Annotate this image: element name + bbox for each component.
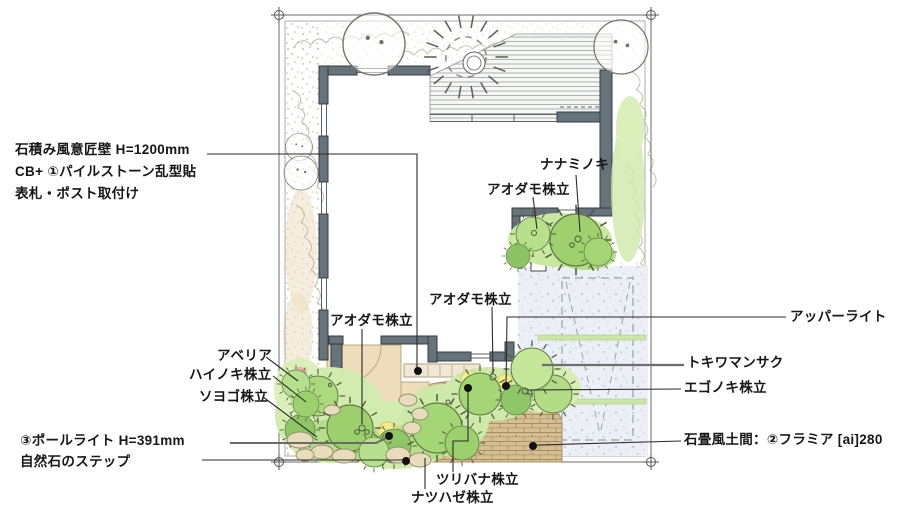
label-natsuhaze: ナツハゼ株立: [411, 490, 494, 505]
label-egonoki: エゴノキ株立: [684, 380, 767, 395]
label-hainoki: ハイノキ株立: [189, 367, 272, 382]
note-stone-wall-line3: 表札・ポスト取付け: [15, 183, 196, 205]
label-aodamo-center: アオダモ株立: [429, 292, 512, 307]
label-stone-floor: 石畳風土間：②フラミア [ai]280: [684, 432, 883, 447]
label-aodamo-right: アオダモ株立: [487, 182, 570, 197]
label-tokiwamansaku: トキワマンサク: [687, 355, 784, 370]
label-soyogo: ソヨゴ株立: [199, 389, 268, 404]
note-stone-wall: 石積み風意匠壁 H=1200mm CB+ ①パイルストーン乱型貼 表札・ポスト取…: [15, 139, 196, 205]
garden-plan-page: 石積み風意匠壁 H=1200mm CB+ ①パイルストーン乱型貼 表札・ポスト取…: [0, 0, 900, 510]
note-stone-wall-line1: 石積み風意匠壁 H=1200mm: [15, 139, 196, 161]
label-abelia: アベリア: [217, 348, 272, 363]
note-stone-wall-line2: CB+ ①パイルストーン乱型貼: [15, 161, 196, 183]
label-pole-light: ③ポールライト H=391mm: [20, 433, 185, 448]
label-tsuribana: ツリバナ株立: [436, 472, 519, 487]
label-upper-light: アッパーライト: [790, 309, 887, 324]
label-nanaminoki: ナナミノキ: [540, 157, 609, 172]
label-natural-stone-steps: 自然石のステップ: [20, 454, 130, 469]
label-aodamo-left: アオダモ株立: [330, 313, 413, 328]
